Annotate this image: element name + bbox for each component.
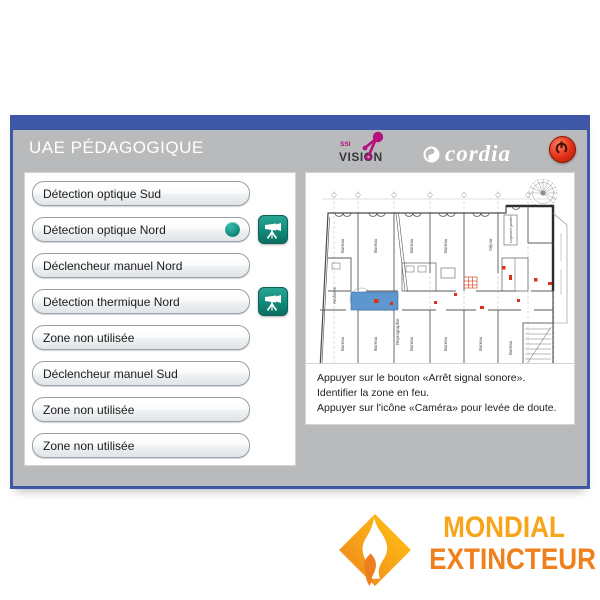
room-label: Bureau	[340, 336, 345, 351]
camera-button-thermique-nord[interactable]	[258, 287, 288, 316]
ssi-logo-small-text: SSI	[340, 141, 351, 148]
zone-button-zone-non-utilisee-2[interactable]: Zone non utilisée	[32, 397, 250, 422]
stairs	[525, 327, 551, 367]
zone-button-label: Détection optique Sud	[43, 187, 161, 201]
room-label-reprographie: Reprographie	[395, 318, 400, 345]
zone-button-label: Déclencheur manuel Sud	[43, 367, 178, 381]
zone-button-label: Détection thermique Nord	[43, 295, 180, 309]
room-label-sejour: Séjour	[488, 238, 493, 251]
camera-icon	[263, 292, 283, 312]
floor-plan: Bureau Bureau Bureau Bureau Bureau Burea…	[306, 173, 574, 390]
room-label: Bureau	[373, 336, 378, 351]
zone-button-label: Déclencheur manuel Nord	[43, 259, 182, 273]
room-label-logement: Logement gardien	[509, 216, 513, 243]
app-window: UAE PÉDAGOGIQUE SSI VISION cordia	[10, 115, 590, 489]
alarm-status-dot	[225, 222, 240, 237]
cordia-logo-text: cordia	[445, 141, 511, 167]
zone-button-detection-thermique-nord[interactable]: Détection thermique Nord	[32, 289, 250, 314]
zone-button-declencheur-manuel-sud[interactable]: Déclencheur manuel Sud	[32, 361, 250, 386]
zone-list-panel: Détection optique Sud Détection optique …	[24, 172, 296, 466]
zone-button-detection-optique-nord[interactable]: Détection optique Nord	[32, 217, 250, 242]
zone-button-label: Détection optique Nord	[43, 223, 166, 237]
zone-button-declencheur-manuel-nord[interactable]: Déclencheur manuel Nord	[32, 253, 250, 278]
flame-icon	[334, 506, 416, 594]
page-title: UAE PÉDAGOGIQUE	[29, 138, 204, 158]
camera-button-optique-nord[interactable]	[258, 215, 288, 244]
room-label: Bureau	[508, 340, 513, 355]
floor-plan-panel: Bureau Bureau Bureau Bureau Bureau Burea…	[305, 172, 575, 391]
power-icon	[550, 137, 573, 160]
brand-line1: MONDIAL	[429, 512, 579, 544]
room-label: Bureau	[373, 238, 378, 253]
room-label: Bureau	[478, 336, 483, 351]
alarm-markers	[374, 266, 552, 309]
zone-button-zone-non-utilisee-3[interactable]: Zone non utilisée	[32, 433, 250, 458]
zone-button-label: Zone non utilisée	[43, 331, 134, 345]
ssi-logo-big-text: VISION	[339, 150, 383, 164]
instructions-panel: Appuyer sur le bouton «Arrêt signal sono…	[305, 363, 575, 425]
ssi-vision-logo: SSI VISION	[335, 130, 399, 170]
mondial-extincteur-logo: MONDIAL EXTINCTEUR	[334, 502, 590, 598]
room-label: Bureau	[340, 238, 345, 253]
zone-button-label: Zone non utilisée	[43, 439, 134, 453]
instruction-line: Appuyer sur l'icône «Caméra» pour levée …	[317, 401, 574, 416]
instruction-line: Identifier la zone en feu.	[317, 386, 574, 401]
ssi-molecule-icon: SSI VISION	[335, 130, 399, 170]
zone-button-zone-non-utilisee-1[interactable]: Zone non utilisée	[32, 325, 250, 350]
zone-button-label: Zone non utilisée	[43, 403, 134, 417]
power-button[interactable]	[549, 136, 576, 163]
cordia-logo: cordia	[423, 141, 511, 167]
room-label: Bureau	[443, 336, 448, 351]
zone-button-detection-optique-sud[interactable]: Détection optique Sud	[32, 181, 250, 206]
brand-line2: EXTINCTEUR	[429, 544, 579, 576]
camera-icon	[263, 220, 283, 240]
cordia-swirl-icon	[423, 146, 440, 163]
instruction-line: Appuyer sur le bouton «Arrêt signal sono…	[317, 371, 574, 386]
room-label: Bureau	[443, 238, 448, 253]
room-label: Bureau	[409, 238, 414, 253]
room-label: Bureau	[409, 336, 414, 351]
compass-icon	[529, 179, 557, 207]
room-label-archives: Archives	[332, 286, 337, 304]
